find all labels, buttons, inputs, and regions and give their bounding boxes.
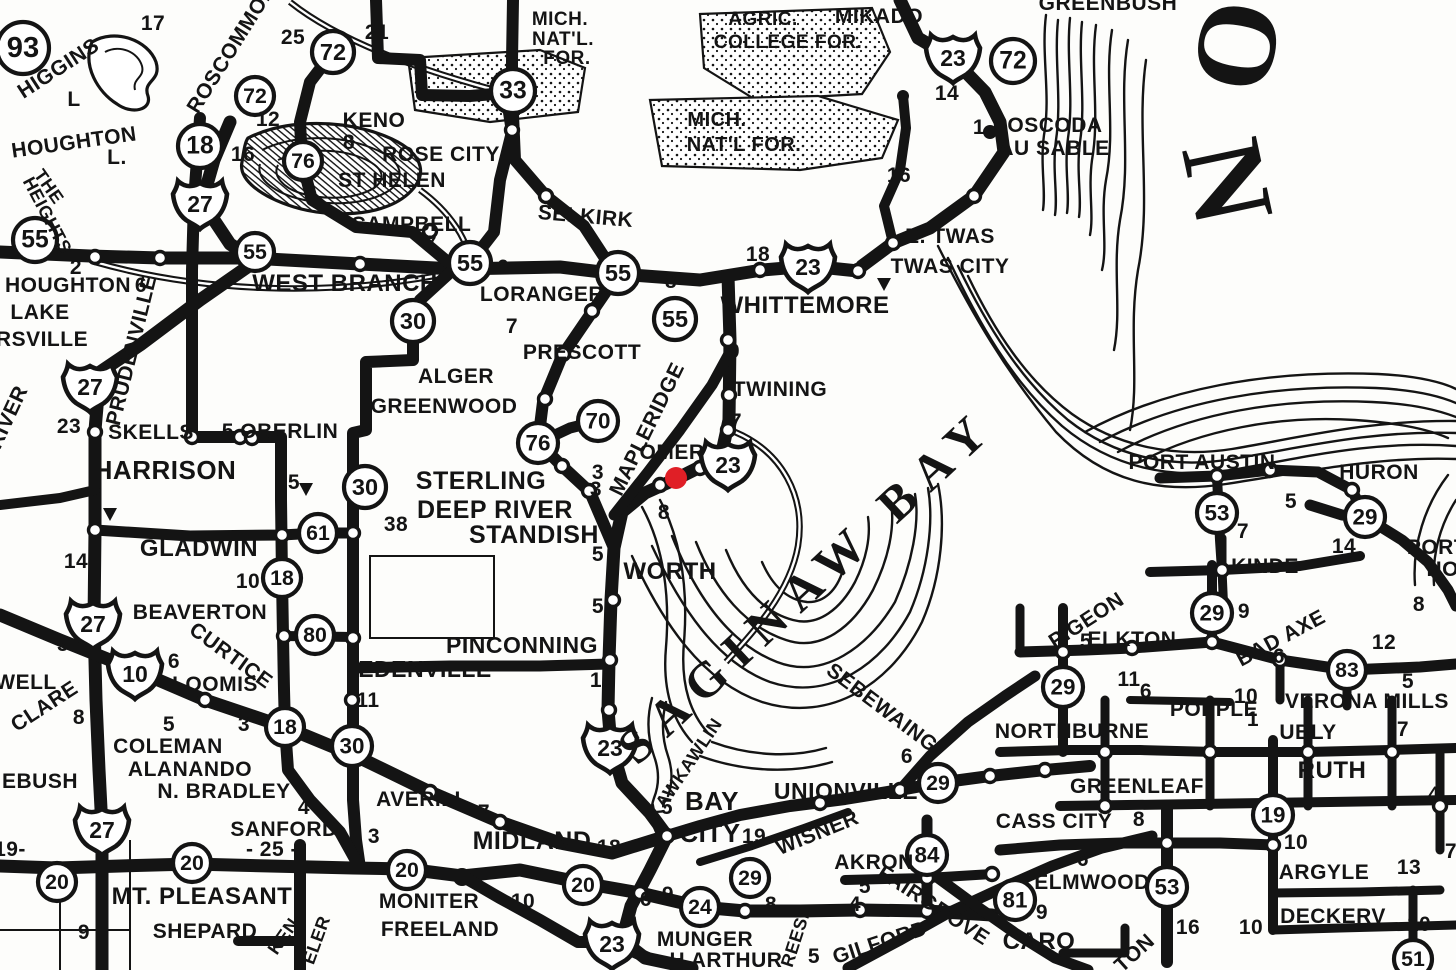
route-shield-state: 19 bbox=[1253, 795, 1293, 835]
junction-dot bbox=[1267, 839, 1280, 852]
shield-number: 19 bbox=[1261, 803, 1286, 828]
place-label: 17 bbox=[141, 12, 165, 35]
junction-dot bbox=[1161, 837, 1174, 850]
route-shield-state: 76 bbox=[284, 142, 322, 180]
shield-number: 24 bbox=[688, 895, 712, 919]
highway-road bbox=[1000, 843, 1273, 850]
place-label: EBUSH bbox=[2, 770, 78, 793]
shield-number: 53 bbox=[1155, 875, 1180, 900]
place-label: MUNGER bbox=[657, 928, 753, 951]
route-shield-state: 18 bbox=[178, 124, 222, 168]
junction-dot bbox=[506, 124, 519, 137]
place-label: MIKADO bbox=[835, 5, 923, 28]
place-label: AGRIC. bbox=[728, 9, 798, 30]
section-line bbox=[370, 556, 494, 638]
place-label: 7 bbox=[1237, 520, 1249, 543]
place-label: HOUGHTON bbox=[5, 274, 131, 297]
place-label: LAKE bbox=[10, 301, 69, 324]
shoreline bbox=[968, 276, 1456, 452]
junction-dot bbox=[986, 868, 999, 881]
place-label: 10 bbox=[236, 570, 260, 593]
place-label: 7 bbox=[425, 232, 437, 255]
place-label: MIDLAND bbox=[473, 827, 592, 855]
place-label: 21 bbox=[365, 21, 389, 44]
place-label: NORTHBURNE bbox=[995, 720, 1149, 743]
route-shield-us: 10 bbox=[108, 651, 162, 699]
route-shield-state: 80 bbox=[296, 616, 334, 654]
route-shield-state: 20 bbox=[564, 866, 602, 904]
shield-number: 55 bbox=[662, 306, 688, 332]
place-label: GREENWOOD bbox=[371, 395, 518, 418]
place-label: 8 bbox=[665, 270, 677, 293]
junction-dot bbox=[1346, 484, 1359, 497]
junction-dot bbox=[89, 251, 102, 264]
route-shield-state: 53 bbox=[1147, 867, 1187, 907]
junction-dot bbox=[1206, 636, 1219, 649]
place-label: 3 bbox=[590, 478, 602, 501]
route-shield-state: 29 bbox=[919, 764, 957, 802]
place-label: 5 bbox=[163, 713, 175, 736]
place-label: 5 OBERLIN bbox=[222, 420, 339, 443]
shield-number: 55 bbox=[243, 240, 267, 264]
place-label: 9 bbox=[1238, 600, 1250, 623]
place-label: STANDISH bbox=[469, 521, 599, 549]
place-label: GLADWIN bbox=[140, 535, 258, 562]
park-triangle-icon bbox=[877, 278, 891, 291]
junction-dot bbox=[1386, 746, 1399, 759]
place-label: GREENLEAF bbox=[1070, 775, 1204, 798]
place-label: NAT'L FOR. bbox=[687, 134, 802, 156]
place-label: - 25 - bbox=[246, 838, 298, 861]
place-label: ALGER bbox=[418, 365, 494, 388]
route-shield-state: 20 bbox=[38, 863, 76, 901]
shoreline bbox=[712, 742, 826, 754]
place-label: FREELAND bbox=[381, 918, 499, 941]
place-label: PORT AUSTIN bbox=[1128, 451, 1275, 474]
place-label: 3 bbox=[368, 825, 380, 848]
junction-dot bbox=[276, 529, 289, 542]
route-shield-state: 29 bbox=[1043, 667, 1083, 707]
place-label: 6 bbox=[168, 650, 180, 673]
junction-dot bbox=[984, 770, 997, 783]
place-label: 5 bbox=[1402, 670, 1414, 693]
town-dot bbox=[983, 125, 997, 139]
place-label: 3 bbox=[238, 713, 250, 736]
shield-number: 30 bbox=[352, 474, 378, 500]
place-label: 5 bbox=[288, 471, 300, 494]
place-label: GREENBUSH bbox=[1039, 0, 1178, 15]
place-label: 5 bbox=[592, 543, 604, 566]
place-label: OSCODA bbox=[1007, 114, 1102, 137]
route-shield-us: 23 bbox=[781, 244, 835, 292]
shield-number: 29 bbox=[738, 866, 762, 890]
place-label: 10 bbox=[590, 669, 614, 692]
place-label: 14 bbox=[64, 550, 88, 573]
place-label: AU SABLE bbox=[998, 137, 1109, 160]
place-label: 8 bbox=[1133, 808, 1145, 831]
route-shield-state: 29 bbox=[1345, 497, 1385, 537]
shield-number: 27 bbox=[187, 191, 213, 217]
place-label: LORANGER bbox=[480, 283, 604, 306]
place-label: WHITTEMORE bbox=[721, 292, 890, 319]
shield-number: 23 bbox=[715, 452, 741, 478]
route-shield-us: 27 bbox=[75, 807, 129, 855]
junction-dot bbox=[89, 524, 102, 537]
shield-number: 51 bbox=[1401, 947, 1425, 970]
shield-number: 20 bbox=[395, 858, 419, 882]
shield-number: 70 bbox=[586, 409, 611, 434]
shield-number: 80 bbox=[303, 623, 327, 647]
place-label: 16 bbox=[887, 164, 911, 187]
shield-number: 27 bbox=[89, 817, 115, 843]
place-label: 18 bbox=[746, 243, 770, 266]
junction-dot bbox=[852, 265, 865, 278]
route-shield-state: 76 bbox=[518, 423, 558, 463]
shield-number: 27 bbox=[80, 611, 106, 637]
route-shield-state: 30 bbox=[344, 466, 386, 508]
junction-dot bbox=[278, 630, 291, 643]
route-shield-state: 83 bbox=[1328, 651, 1366, 689]
place-label: CASS CITY bbox=[996, 810, 1113, 833]
route-shield-state: 30 bbox=[332, 726, 372, 766]
place-label: 10 bbox=[1284, 831, 1308, 854]
place-label: HARRISON bbox=[94, 455, 237, 485]
junction-dot bbox=[539, 393, 552, 406]
place-label: E. TWAS bbox=[905, 225, 995, 248]
place-label: 5 bbox=[808, 945, 820, 968]
place-label: SHEPARD bbox=[153, 920, 258, 943]
place-label: ELKTON bbox=[1088, 628, 1177, 651]
road-map: 9372721876337255555555553030707661188018… bbox=[0, 0, 1456, 970]
place-label: 6 bbox=[640, 888, 652, 911]
place-label: L. bbox=[107, 146, 127, 169]
shield-number: 76 bbox=[291, 149, 315, 173]
route-shield-state: 55 bbox=[236, 233, 274, 271]
shoreline bbox=[1043, 15, 1047, 210]
place-label: 8 bbox=[658, 501, 670, 524]
place-label: L bbox=[67, 88, 80, 111]
place-label: 14 bbox=[935, 82, 959, 105]
place-label: COLEMAN bbox=[113, 735, 223, 758]
place-label: 6 bbox=[1077, 848, 1089, 871]
place-label: CAMPBELL bbox=[351, 213, 472, 236]
shoreline bbox=[1130, 60, 1146, 430]
place-label: 5 bbox=[592, 595, 604, 618]
place-label: 4 bbox=[1428, 783, 1440, 806]
place-label: PINCONNING bbox=[446, 632, 598, 658]
place-label: VERONA MILLS bbox=[1285, 690, 1449, 713]
place-label: 1 bbox=[973, 116, 985, 139]
route-shield-state: 70 bbox=[578, 401, 618, 441]
place-label: BAY bbox=[685, 786, 739, 816]
place-label: 13 bbox=[1397, 856, 1421, 879]
place-label: OMER bbox=[640, 441, 705, 464]
shield-number: 10 bbox=[122, 661, 148, 687]
junction-dot bbox=[739, 905, 752, 918]
place-label: RSVILLE bbox=[0, 328, 88, 351]
place-label: 6 bbox=[497, 256, 509, 279]
place-label: PORT bbox=[1407, 536, 1456, 559]
place-label: 6 bbox=[901, 745, 913, 768]
route-shield-state: 55 bbox=[449, 242, 491, 284]
shield-number: 93 bbox=[7, 32, 39, 64]
junction-dot bbox=[1099, 746, 1112, 759]
shield-number: 20 bbox=[45, 870, 69, 894]
place-label: 9 bbox=[78, 921, 90, 944]
route-shield-state: 81 bbox=[995, 880, 1035, 920]
junction-dot bbox=[604, 654, 617, 667]
route-shield-state: 72 bbox=[312, 31, 354, 73]
shield-number: 81 bbox=[1003, 888, 1028, 913]
junction-dot bbox=[347, 632, 360, 645]
route-shield-state: 20 bbox=[388, 851, 426, 889]
place-label: 19 bbox=[742, 825, 766, 848]
place-label: KINDE bbox=[1231, 555, 1299, 578]
place-label: TWAS CITY bbox=[891, 255, 1010, 278]
town-dot bbox=[897, 90, 909, 102]
shield-number: 29 bbox=[1200, 601, 1225, 626]
junction-dot bbox=[556, 460, 569, 473]
place-label: 8 bbox=[343, 131, 355, 154]
lake-huron-letter: N bbox=[1157, 128, 1298, 236]
place-label: H ARTHUR bbox=[670, 949, 783, 970]
forest-area bbox=[650, 96, 898, 170]
shield-number: 23 bbox=[599, 931, 625, 957]
place-label: RUTH bbox=[1298, 757, 1367, 784]
place-label: ALANANDO bbox=[128, 758, 252, 781]
town-dot bbox=[453, 868, 471, 886]
shoreline bbox=[700, 756, 832, 770]
junction-dot bbox=[603, 704, 616, 717]
shield-number: 27 bbox=[77, 374, 103, 400]
place-label: 12 bbox=[256, 108, 280, 131]
junction-dot bbox=[347, 527, 360, 540]
place-label: CITY bbox=[679, 818, 740, 848]
place-label: 16 bbox=[231, 143, 255, 166]
place-label: 9 bbox=[1036, 901, 1048, 924]
junction-dot bbox=[586, 305, 599, 318]
shield-number: 20 bbox=[571, 873, 595, 897]
place-label: WORTH bbox=[623, 558, 716, 585]
place-label: 5 bbox=[1285, 490, 1297, 513]
place-label: KENO bbox=[343, 109, 406, 132]
place-label: GILFORD bbox=[830, 917, 930, 969]
route-shield-state: 24 bbox=[681, 888, 719, 926]
shield-number: 72 bbox=[999, 48, 1026, 75]
map-canvas: 9372721876337255555555553030707661188018… bbox=[0, 0, 1456, 970]
place-label: 10 bbox=[1407, 913, 1431, 936]
place-label: NAT'L. bbox=[532, 29, 594, 50]
place-label: 19- bbox=[0, 838, 26, 861]
route-shield-state: 30 bbox=[392, 300, 434, 342]
park-triangle-icon bbox=[103, 508, 117, 521]
place-label: N. BRADLEY bbox=[157, 780, 290, 803]
route-shield-state: 29 bbox=[731, 859, 769, 897]
place-label: 11 bbox=[1117, 668, 1140, 691]
place-label: UNIONVILLE bbox=[774, 778, 918, 804]
junction-dot bbox=[607, 594, 620, 607]
place-label: RIVER bbox=[0, 382, 33, 452]
place-label: SELKIRK bbox=[537, 201, 634, 232]
shield-number: 72 bbox=[320, 39, 346, 65]
shield-number: 84 bbox=[915, 843, 940, 868]
highway-road bbox=[0, 490, 95, 505]
route-shield-state: 18 bbox=[266, 708, 304, 746]
junction-dot bbox=[661, 830, 674, 843]
shield-number: 76 bbox=[526, 431, 551, 456]
place-label: TWINING bbox=[733, 378, 827, 401]
shield-number: 20 bbox=[180, 851, 204, 875]
route-shield-state: 72 bbox=[991, 39, 1035, 83]
place-label: 9 bbox=[728, 340, 740, 363]
shoreline bbox=[1114, 40, 1128, 350]
lake-huron-letter: O bbox=[1168, 0, 1309, 101]
place-label: ARGYLE bbox=[1279, 861, 1370, 884]
place-label: 18 bbox=[597, 836, 621, 859]
place-label: HURON bbox=[1339, 461, 1419, 484]
route-shield-us: 23 bbox=[585, 921, 639, 969]
place-label: EDENVILLE bbox=[358, 656, 492, 682]
route-shield-state: 18 bbox=[263, 559, 301, 597]
route-shield-state: 51 bbox=[1394, 940, 1432, 970]
junction-dot bbox=[1216, 564, 1229, 577]
place-label: 38 bbox=[384, 513, 408, 536]
place-label: 10 bbox=[1239, 916, 1263, 939]
route-shield-us: 23 bbox=[701, 442, 755, 490]
omer-highlight[interactable] bbox=[665, 467, 687, 489]
place-label: 14 bbox=[1332, 535, 1356, 558]
junction-dot bbox=[654, 479, 667, 492]
place-label: SEBEWAING bbox=[822, 659, 942, 757]
shield-number: 83 bbox=[1335, 658, 1359, 682]
place-label: 11 bbox=[356, 689, 379, 712]
place-label: UBLY bbox=[1279, 721, 1336, 744]
place-label: MT. PLEASANT bbox=[112, 883, 293, 910]
place-label: 16 bbox=[1176, 916, 1200, 939]
place-label: CARO bbox=[1003, 928, 1076, 955]
route-shield-state: 55 bbox=[654, 298, 696, 340]
shield-number: 29 bbox=[926, 771, 950, 795]
shield-number: 55 bbox=[457, 250, 483, 276]
shield-number: 29 bbox=[1353, 505, 1378, 530]
park-triangle-icon bbox=[299, 483, 313, 496]
place-label: DEEP RIVER bbox=[417, 496, 573, 524]
shield-number: 30 bbox=[340, 734, 365, 759]
junction-dot bbox=[354, 258, 367, 271]
place-label: 8 bbox=[73, 706, 85, 729]
place-label: LOOMIS bbox=[172, 673, 258, 696]
junction-dot bbox=[968, 190, 981, 203]
shield-number: 18 bbox=[186, 133, 213, 160]
junction-dot bbox=[1039, 764, 1052, 777]
shield-number: 30 bbox=[400, 308, 426, 334]
place-label: STERLING bbox=[416, 467, 546, 495]
junction-dot bbox=[887, 237, 900, 250]
place-label: HOP bbox=[1426, 558, 1456, 581]
place-label: 10 bbox=[511, 890, 535, 913]
place-label: 23 bbox=[57, 415, 81, 438]
route-shield-state: 33 bbox=[491, 69, 535, 113]
shoreline bbox=[948, 258, 1456, 473]
shield-number: 33 bbox=[499, 78, 526, 105]
place-label: 7 bbox=[730, 410, 742, 433]
place-label: 8 bbox=[765, 893, 777, 916]
place-label: MONITER bbox=[379, 890, 479, 913]
route-shield-state: 61 bbox=[299, 514, 337, 552]
shield-number: 23 bbox=[940, 45, 966, 71]
place-label: 12 bbox=[1372, 631, 1396, 654]
place-label: 9 bbox=[662, 883, 674, 906]
place-label: 7 bbox=[478, 801, 490, 824]
shield-number: 29 bbox=[1051, 675, 1076, 700]
place-label: MICH. bbox=[687, 109, 746, 131]
place-label: DECKERV bbox=[1280, 905, 1386, 928]
place-label: PRESCOTT bbox=[523, 341, 641, 364]
place-label: COLLEGE FOR. bbox=[714, 32, 863, 53]
place-label: SKELLS bbox=[108, 421, 194, 444]
route-shield-state: 53 bbox=[1197, 493, 1237, 533]
shield-number: 53 bbox=[1205, 501, 1230, 526]
shield-number: 72 bbox=[243, 84, 267, 108]
shield-number: 55 bbox=[605, 260, 631, 286]
place-label: 1 bbox=[1247, 708, 1259, 731]
place-label: 6 bbox=[1140, 680, 1152, 703]
place-label: WEST BRANCH bbox=[252, 270, 438, 297]
shield-number: 23 bbox=[795, 254, 821, 280]
place-label: 7 bbox=[506, 315, 518, 338]
place-label: 5 bbox=[57, 633, 69, 656]
place-label: 4 bbox=[849, 893, 861, 916]
shield-number: 61 bbox=[306, 521, 330, 545]
place-label: AVERILL bbox=[376, 788, 468, 811]
place-label: 6 bbox=[1273, 645, 1285, 668]
junction-dot bbox=[89, 426, 102, 439]
place-label: ELMWOOD bbox=[1034, 871, 1149, 894]
place-label: 10 bbox=[1234, 685, 1258, 708]
place-label: 7 bbox=[1445, 840, 1456, 863]
shield-number: 18 bbox=[270, 566, 294, 590]
route-shield-state: 29 bbox=[1192, 593, 1232, 633]
junction-dot bbox=[1204, 746, 1217, 759]
place-label: 8 bbox=[1413, 593, 1425, 616]
shield-number: 18 bbox=[273, 715, 297, 739]
place-label: 4 bbox=[298, 796, 310, 819]
place-label: MICH. bbox=[532, 9, 588, 30]
place-label: 2 bbox=[70, 256, 82, 279]
junction-dot bbox=[154, 252, 167, 265]
place-label: ROSE CITY bbox=[382, 143, 500, 166]
place-label: 25 bbox=[281, 26, 305, 49]
shoreline bbox=[958, 266, 1456, 462]
place-label: ST HELEN bbox=[338, 169, 446, 192]
place-label: FOR. bbox=[543, 48, 590, 69]
route-shield-state: 20 bbox=[173, 844, 211, 882]
place-label: 7 bbox=[1397, 718, 1409, 741]
